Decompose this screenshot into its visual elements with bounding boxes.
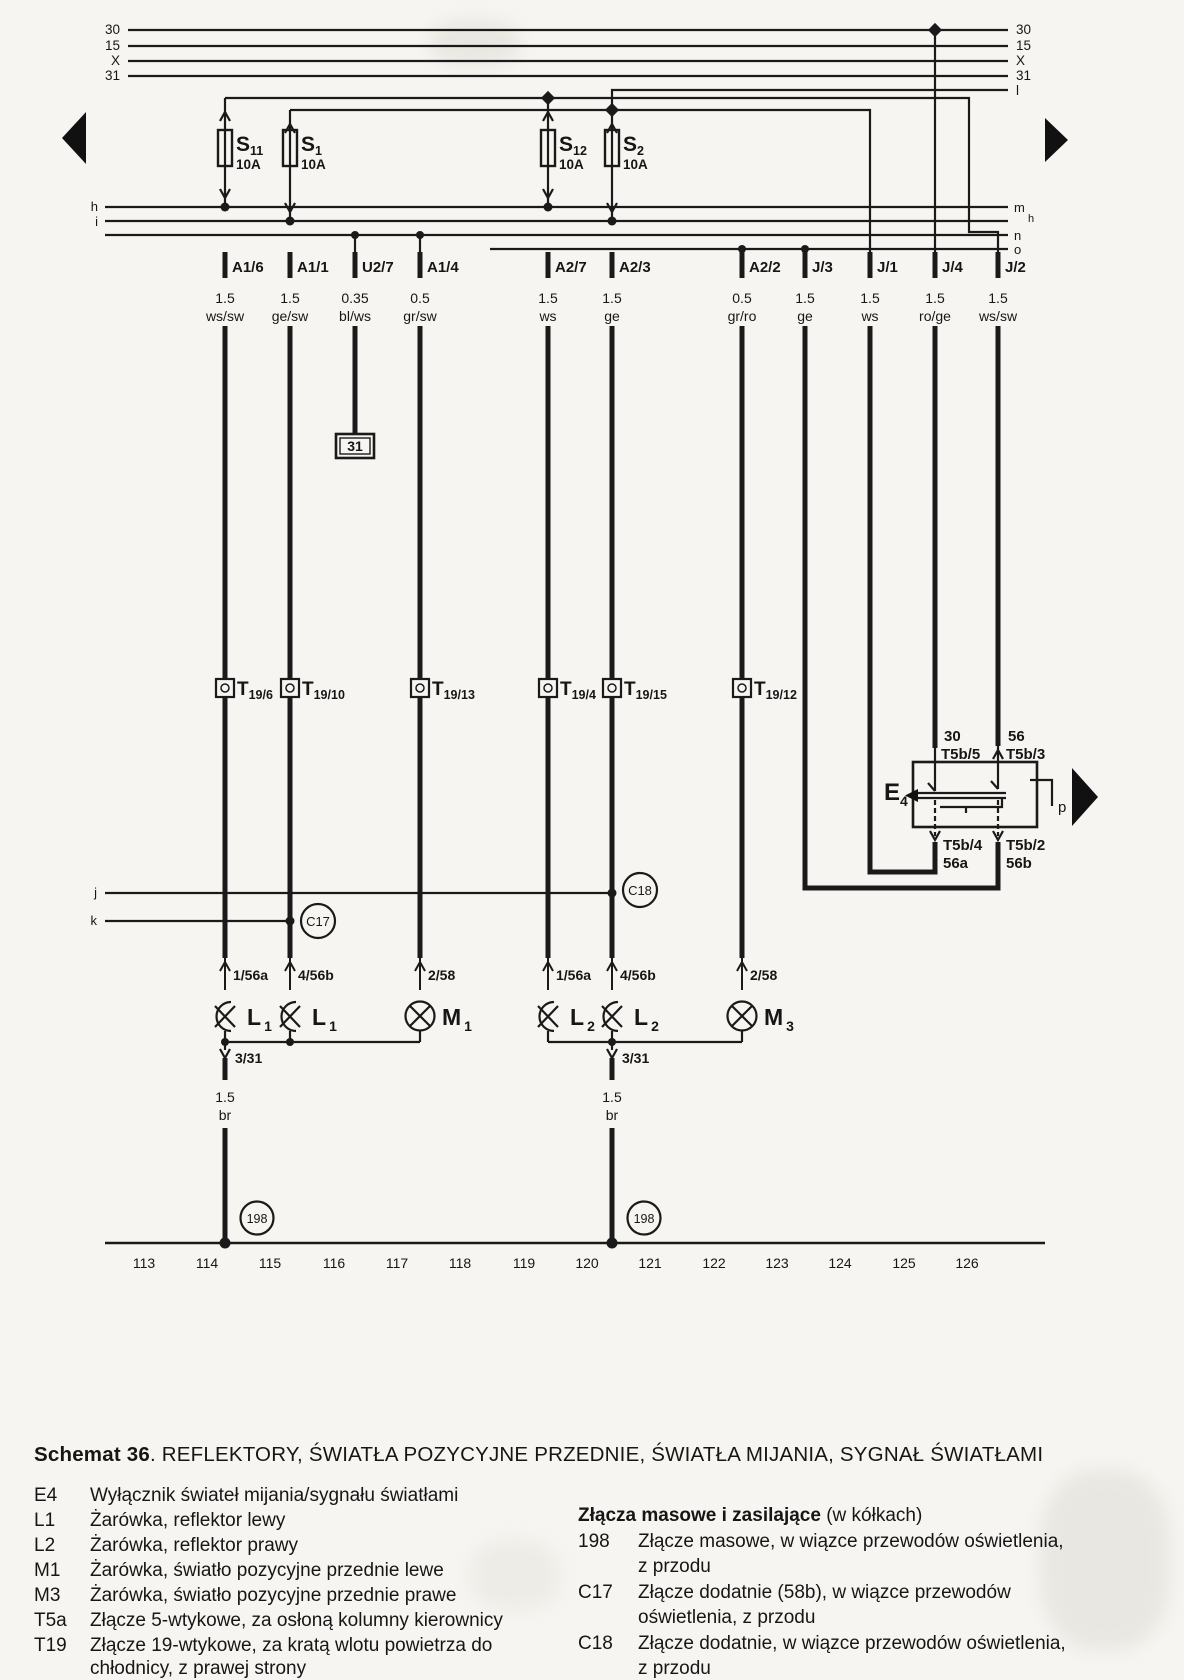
wire-color: ro/ge [919, 308, 951, 324]
fuse-s11-amps: 10A [236, 157, 261, 172]
e4-pin-t5b5: T5b/5 [941, 746, 980, 763]
ground-wire-gauge: 1.5 [215, 1089, 235, 1105]
scanned-wiring-diagram-page: 30 15 X 31 30 15 X 31 l [0, 0, 1184, 1680]
page-arrow-left-icon [62, 112, 86, 164]
legend-item: M3Żarówka, światło pozycyjne przednie pr… [34, 1585, 456, 1607]
wire-gauge: 1.5 [925, 290, 945, 306]
legend-item: L2Żarówka, reflektor prawy [34, 1535, 298, 1557]
e4-pin-t5b2: T5b/2 [1006, 837, 1045, 854]
rail-lines [105, 207, 1008, 254]
t19-label: T19/10 [302, 679, 345, 702]
bus-label-l-right: l [1016, 83, 1019, 98]
connector-label: U2/7 [362, 259, 394, 276]
bus-junction-dots [541, 23, 942, 117]
rail-label-h-right: h [1028, 213, 1034, 225]
legend-item: C18Złącze dodatnie, w wiązce przewodów o… [578, 1633, 1066, 1655]
fuse-s12 [541, 98, 555, 207]
e4-terminal-56b: 56b [1006, 855, 1032, 872]
wire-gauge: 0.35 [341, 290, 368, 306]
wire-gauge: 1.5 [215, 290, 235, 306]
fuse-s1-label: S1 [301, 133, 322, 158]
t19-label: T19/15 [624, 679, 667, 702]
e4-terminal-56: 56 [1008, 728, 1025, 745]
legend-item-wrap: z przodu [638, 1658, 711, 1680]
rail-label-h-left: h [91, 199, 98, 214]
page-arrow-right-top-icon [1045, 118, 1068, 162]
fuse-s2 [605, 110, 619, 221]
scan-artifact [470, 1540, 560, 1610]
ground-terminal: 3/31 [622, 1050, 649, 1066]
ground-node-circles [241, 1202, 661, 1235]
bulb-label: L1 [247, 1004, 272, 1034]
svg-text:118: 118 [449, 1255, 472, 1271]
wire-color: ws [538, 308, 556, 324]
bus-label-31-right: 31 [1016, 68, 1031, 83]
wire-gauge: 1.5 [602, 290, 622, 306]
wire-gauge: 1.5 [988, 290, 1008, 306]
legend-item: 198Złącze masowe, w wiązce przewodów ośw… [578, 1531, 1064, 1553]
t19-label: T19/6 [237, 679, 273, 702]
svg-text:123: 123 [765, 1255, 789, 1271]
bulb-terminal: 1/56a [556, 967, 591, 983]
fuse-s2-label: S2 [623, 133, 644, 158]
bulb-terminal: 2/58 [428, 967, 455, 983]
fuse-s1 [283, 110, 297, 221]
t19-label: T19/4 [560, 679, 596, 702]
legend-item-wrap: chłodnicy, z prawej strony [90, 1658, 306, 1680]
connector-label: A1/1 [297, 259, 329, 276]
fuse-s12-label: S12 [559, 133, 587, 158]
bulb-terminal: 2/58 [750, 967, 777, 983]
ground-node-label: 198 [247, 1212, 268, 1226]
connector-label: J/4 [942, 259, 964, 276]
e4-terminal-30: 30 [944, 728, 961, 745]
fuse-s12-amps: 10A [559, 157, 584, 172]
legend-item-wrap: oświetlenia, z przodu [638, 1607, 815, 1629]
node-c18-label: C18 [628, 883, 652, 898]
bus-label-30-right: 30 [1016, 22, 1031, 37]
svg-text:121: 121 [638, 1255, 662, 1271]
bulb-label: M3 [764, 1004, 794, 1034]
bulb-label: L2 [634, 1004, 659, 1034]
wire-gauge: 1.5 [538, 290, 558, 306]
track-numbers: 113114 115116 117118 119120 121122 12312… [133, 1255, 979, 1271]
wire-color: gr/sw [403, 308, 437, 324]
connector-label: J/1 [877, 259, 898, 276]
wiring-diagram: 30 15 X 31 30 15 X 31 l [0, 0, 1184, 1300]
ground-31-label: 31 [347, 438, 363, 454]
svg-text:119: 119 [513, 1255, 536, 1271]
fuse-s2-amps: 10A [623, 157, 648, 172]
headlight-bulb-icon [280, 1002, 300, 1031]
e4-terminal-56a: 56a [943, 855, 969, 872]
page-arrow-right-e4-icon [1072, 768, 1098, 826]
legend-item: T19Złącze 19-wtykowe, za kratą wlotu pow… [34, 1635, 492, 1657]
bulb-label: L2 [570, 1004, 595, 1034]
wire-color: ge [604, 308, 620, 324]
branch-label-k: k [91, 913, 98, 928]
bulb-symbols [215, 1002, 757, 1032]
wire-color: ge/sw [272, 308, 309, 324]
schematic-title: Schemat 36. REFLEKTORY, ŚWIATŁA POZYCYJN… [34, 1443, 1043, 1467]
headlight-bulb-icon [602, 1002, 622, 1031]
svg-text:124: 124 [828, 1255, 852, 1271]
connector-label: A1/4 [427, 259, 459, 276]
ground-terminal: 3/31 [235, 1050, 262, 1066]
wire-gauge: 0.5 [732, 290, 752, 306]
branch-label-j: j [93, 885, 97, 900]
wire-color: ws/sw [205, 308, 245, 324]
wire-color: ws [860, 308, 878, 324]
connector-label: J/3 [812, 259, 833, 276]
legend-item: C17Złącze dodatnie (58b), w wiązce przew… [578, 1582, 1011, 1604]
connector-label: A2/3 [619, 259, 651, 276]
wire-color: bl/ws [339, 308, 371, 324]
legend-item: T5aZłącze 5-wtykowe, za osłoną kolumny k… [34, 1610, 503, 1632]
svg-text:114: 114 [196, 1255, 219, 1271]
position-lamp-icon [728, 1002, 757, 1031]
ground-node-label: 198 [634, 1212, 655, 1226]
fuse-s11 [218, 98, 232, 207]
bulb-terminal: 4/56b [298, 967, 334, 983]
node-c17-label: C17 [306, 914, 330, 929]
fuse-s1-amps: 10A [301, 157, 326, 172]
t19-label: T19/12 [754, 679, 797, 702]
connector-label: J/2 [1005, 259, 1026, 276]
wire-gauge: 0.5 [410, 290, 430, 306]
bus-label-30-left: 30 [105, 22, 120, 37]
rail-junction-dots [221, 203, 810, 254]
connector-label: A1/6 [232, 259, 264, 276]
bulb-terminal: 1/56a [233, 967, 268, 983]
ground-wire-color: br [606, 1107, 619, 1123]
ground-wire-color: br [219, 1107, 232, 1123]
rail-label-n-right: n [1014, 228, 1021, 243]
svg-text:116: 116 [323, 1255, 346, 1271]
bulb-terminal: 4/56b [620, 967, 656, 983]
svg-text:113: 113 [133, 1255, 156, 1271]
svg-text:115: 115 [259, 1255, 282, 1271]
schematic-number: Schemat 36 [34, 1443, 150, 1466]
svg-text:120: 120 [575, 1255, 599, 1271]
wire-color: gr/ro [728, 308, 757, 324]
svg-text:125: 125 [892, 1255, 916, 1271]
e4-pin-t5b3: T5b/3 [1006, 746, 1045, 763]
branch-lines [105, 873, 657, 938]
rail-label-o-right: o [1014, 242, 1021, 257]
legend-item: L1Żarówka, reflektor lewy [34, 1510, 285, 1532]
headlight-bulb-icon [215, 1002, 235, 1031]
fuse-s11-label: S11 [236, 133, 263, 158]
legend-item-wrap: z przodu [638, 1556, 711, 1578]
legend-item: E4Wyłącznik świateł mijania/sygnału świa… [34, 1485, 458, 1507]
legend-item: M1Żarówka, światło pozycyjne przednie le… [34, 1560, 444, 1582]
svg-text:117: 117 [386, 1255, 409, 1271]
bus-label-x-left: X [111, 53, 120, 68]
t19-symbols [216, 679, 751, 697]
position-lamp-icon [406, 1002, 435, 1031]
bus-label-31-left: 31 [105, 68, 120, 83]
bulb-label: M1 [442, 1004, 472, 1034]
svg-text:122: 122 [702, 1255, 726, 1271]
connector-label: A2/2 [749, 259, 781, 276]
svg-text:126: 126 [955, 1255, 979, 1271]
wire-gauge: 1.5 [280, 290, 300, 306]
bus-label-15-right: 15 [1016, 38, 1031, 53]
bus-label-15-left: 15 [105, 38, 120, 53]
scan-artifact [1040, 1470, 1170, 1650]
wire-gauge: 1.5 [860, 290, 880, 306]
headlight-bulb-icon [538, 1002, 558, 1031]
rail-label-m-right: m [1014, 200, 1025, 215]
bulb-label: L1 [312, 1004, 337, 1034]
main-wires [225, 326, 998, 1243]
t19-label: T19/13 [432, 679, 475, 702]
bulb-ground-joins [220, 1031, 742, 1058]
wire-gauge: 1.5 [795, 290, 815, 306]
legend-heading: Złącza masowe i zasilające (w kółkach) [578, 1505, 922, 1527]
connector-label: A2/7 [555, 259, 587, 276]
wire-color: ge [797, 308, 813, 324]
ground-wire-gauge: 1.5 [602, 1089, 622, 1105]
bus-label-x-right: X [1016, 53, 1025, 68]
e4-label: E4 [884, 779, 908, 809]
wire-color: ws/sw [978, 308, 1018, 324]
e4-wiper-p-label: p [1058, 799, 1066, 816]
rail-label-i-left: i [95, 214, 98, 229]
e4-pin-t5b4: T5b/4 [943, 837, 983, 854]
